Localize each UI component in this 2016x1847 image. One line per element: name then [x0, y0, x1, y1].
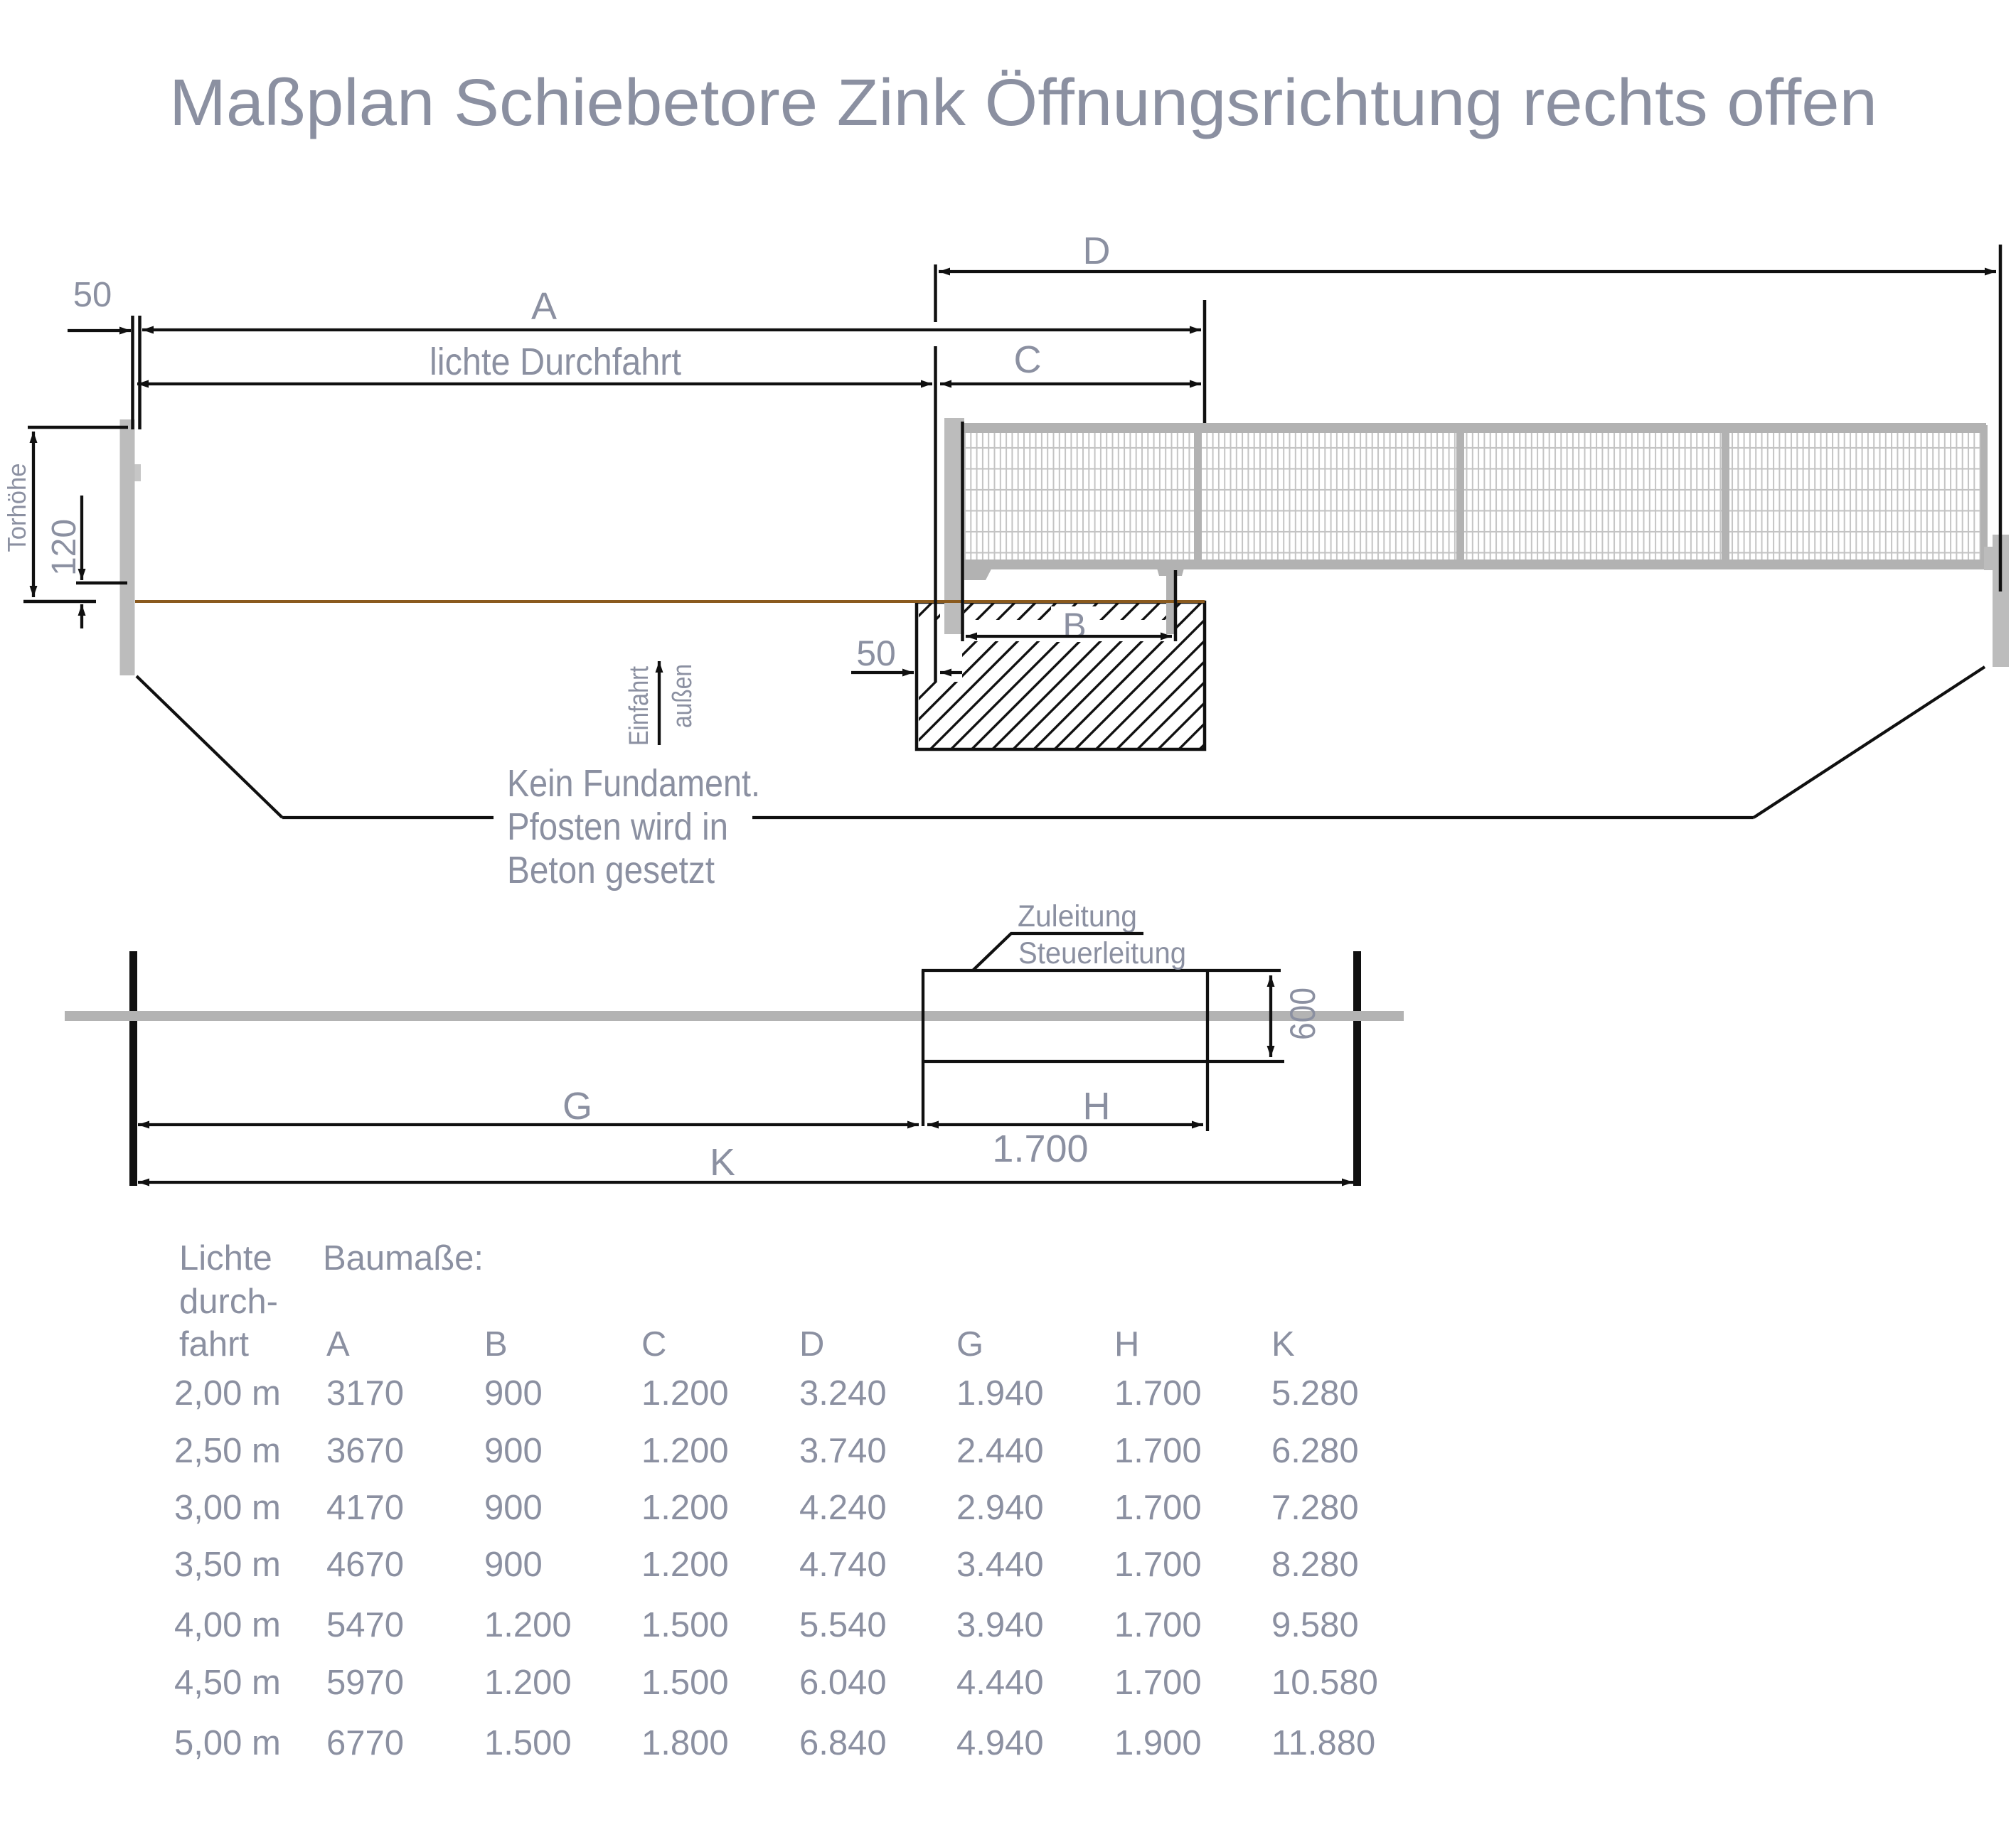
- svg-text:1.800: 1.800: [641, 1724, 729, 1762]
- svg-text:1.500: 1.500: [641, 1664, 729, 1702]
- svg-text:Einfahrt: Einfahrt: [624, 666, 654, 746]
- svg-text:600: 600: [1283, 987, 1323, 1040]
- svg-text:50: 50: [73, 276, 112, 314]
- svg-text:lichte Durchfahrt: lichte Durchfahrt: [430, 341, 681, 383]
- svg-text:D: D: [1083, 230, 1111, 272]
- svg-text:900: 900: [484, 1432, 543, 1470]
- svg-text:3.240: 3.240: [799, 1374, 887, 1413]
- svg-text:1.700: 1.700: [1114, 1546, 1202, 1584]
- svg-text:1.500: 1.500: [641, 1606, 729, 1644]
- svg-text:1.500: 1.500: [484, 1724, 572, 1762]
- svg-text:1.700: 1.700: [1114, 1606, 1202, 1644]
- svg-text:1.200: 1.200: [641, 1374, 729, 1413]
- svg-text:120: 120: [46, 519, 83, 576]
- svg-text:G: G: [956, 1325, 983, 1364]
- svg-text:H: H: [1114, 1325, 1139, 1364]
- svg-text:4170: 4170: [326, 1489, 404, 1527]
- svg-text:1.200: 1.200: [484, 1606, 572, 1644]
- svg-text:Beton gesetzt: Beton gesetzt: [507, 849, 715, 892]
- svg-text:6.040: 6.040: [799, 1664, 887, 1702]
- svg-text:900: 900: [484, 1546, 543, 1584]
- svg-text:6770: 6770: [326, 1724, 404, 1762]
- svg-text:A: A: [531, 285, 557, 328]
- svg-text:1.700: 1.700: [992, 1128, 1088, 1170]
- svg-text:10.580: 10.580: [1271, 1664, 1378, 1702]
- svg-text:1.700: 1.700: [1114, 1664, 1202, 1702]
- svg-text:B: B: [484, 1325, 508, 1364]
- svg-text:3670: 3670: [326, 1432, 404, 1470]
- svg-text:5.540: 5.540: [799, 1606, 887, 1644]
- svg-text:2.940: 2.940: [956, 1489, 1044, 1527]
- svg-text:1.700: 1.700: [1114, 1489, 1202, 1527]
- svg-text:D: D: [799, 1325, 824, 1364]
- svg-text:durch-: durch-: [179, 1283, 278, 1321]
- svg-text:Zuleitung: Zuleitung: [1018, 899, 1137, 933]
- svg-text:Baumaße:: Baumaße:: [323, 1239, 484, 1278]
- svg-text:1.700: 1.700: [1114, 1374, 1202, 1413]
- svg-text:Torhöhe: Torhöhe: [2, 464, 31, 552]
- svg-text:900: 900: [484, 1374, 543, 1413]
- svg-text:1.200: 1.200: [641, 1546, 729, 1584]
- svg-text:2.440: 2.440: [956, 1432, 1044, 1470]
- svg-text:4.240: 4.240: [799, 1489, 887, 1527]
- svg-text:1.940: 1.940: [956, 1374, 1044, 1413]
- svg-text:4,50 m: 4,50 m: [174, 1664, 281, 1702]
- svg-text:3.440: 3.440: [956, 1546, 1044, 1584]
- svg-text:1.700: 1.700: [1114, 1432, 1202, 1470]
- svg-text:7.280: 7.280: [1271, 1489, 1359, 1527]
- svg-text:3170: 3170: [326, 1374, 404, 1413]
- svg-text:5470: 5470: [326, 1606, 404, 1644]
- svg-text:50: 50: [856, 633, 896, 673]
- svg-text:4670: 4670: [326, 1546, 404, 1584]
- svg-text:11.880: 11.880: [1271, 1724, 1375, 1762]
- svg-text:H: H: [1083, 1085, 1111, 1128]
- svg-text:3,00 m: 3,00 m: [174, 1489, 281, 1527]
- svg-text:4.740: 4.740: [799, 1546, 887, 1584]
- svg-text:1.200: 1.200: [641, 1432, 729, 1470]
- svg-text:900: 900: [484, 1489, 543, 1527]
- svg-text:3.740: 3.740: [799, 1432, 887, 1470]
- svg-text:5970: 5970: [326, 1664, 404, 1702]
- svg-text:2,50 m: 2,50 m: [174, 1432, 281, 1470]
- svg-text:fahrt: fahrt: [179, 1325, 249, 1364]
- svg-text:Maßplan Schiebetore Zink Öffnu: Maßplan Schiebetore Zink Öffnungsrichtun…: [169, 65, 1877, 139]
- svg-text:5,00 m: 5,00 m: [174, 1724, 281, 1762]
- svg-text:5.280: 5.280: [1271, 1374, 1359, 1413]
- svg-text:K: K: [1271, 1325, 1295, 1364]
- svg-text:A: A: [326, 1325, 350, 1364]
- svg-text:Lichte: Lichte: [179, 1239, 272, 1278]
- svg-text:Kein Fundament.: Kein Fundament.: [507, 762, 760, 805]
- svg-text:4,00 m: 4,00 m: [174, 1606, 281, 1644]
- svg-text:9.580: 9.580: [1271, 1606, 1359, 1644]
- svg-text:B: B: [1062, 606, 1086, 646]
- svg-text:C: C: [1014, 338, 1042, 381]
- svg-text:C: C: [641, 1325, 666, 1364]
- svg-text:4.940: 4.940: [956, 1724, 1044, 1762]
- svg-text:6.280: 6.280: [1271, 1432, 1359, 1470]
- svg-text:außen: außen: [668, 664, 698, 728]
- svg-text:Pfosten wird in: Pfosten wird in: [507, 805, 728, 848]
- svg-text:3.940: 3.940: [956, 1606, 1044, 1644]
- svg-text:1.200: 1.200: [641, 1489, 729, 1527]
- svg-text:1.200: 1.200: [484, 1664, 572, 1702]
- svg-text:1.900: 1.900: [1114, 1724, 1202, 1762]
- svg-text:8.280: 8.280: [1271, 1546, 1359, 1584]
- svg-text:G: G: [562, 1085, 592, 1128]
- svg-text:3,50 m: 3,50 m: [174, 1546, 281, 1584]
- svg-text:2,00 m: 2,00 m: [174, 1374, 281, 1413]
- svg-text:6.840: 6.840: [799, 1724, 887, 1762]
- svg-text:Steuerleitung: Steuerleitung: [1018, 936, 1186, 970]
- svg-text:4.440: 4.440: [956, 1664, 1044, 1702]
- svg-text:K: K: [710, 1141, 735, 1184]
